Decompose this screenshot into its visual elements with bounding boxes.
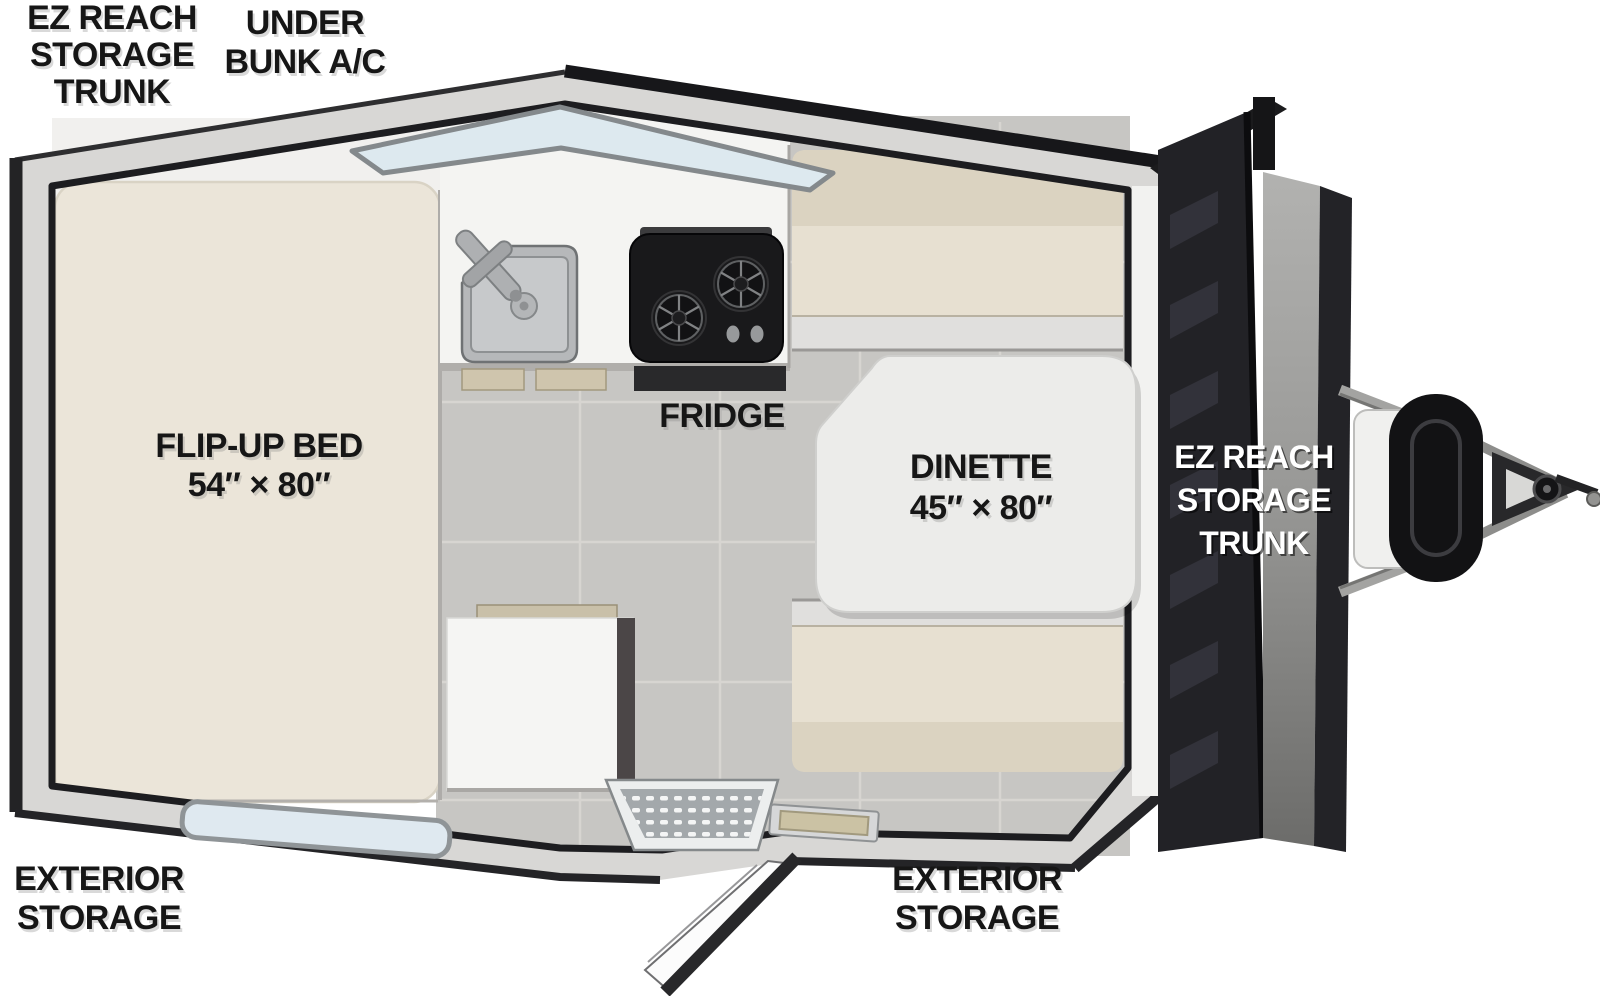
propane-tank [1389, 394, 1483, 582]
stove-knob [751, 326, 764, 343]
svg-text:TRUNK: TRUNK [1199, 525, 1309, 561]
callout-exterior-storage-left: EXTERIOR STORAGE [14, 860, 184, 937]
svg-text:FRIDGE: FRIDGE [659, 397, 784, 435]
callout-text: BUNK A/C [225, 43, 386, 81]
label-fridge: FRIDGE [659, 397, 784, 435]
callout-text: EXTERIOR [892, 860, 1062, 898]
burner [652, 291, 706, 345]
callout-text: STORAGE [17, 899, 181, 937]
svg-text:STORAGE: STORAGE [1177, 482, 1331, 518]
callout-under-bunk-ac: UNDER BUNK A/C [225, 4, 386, 81]
dinette-bench-bottom [792, 600, 1123, 772]
callout-text: STORAGE [895, 899, 1059, 937]
callout-text: TRUNK [54, 73, 171, 111]
entry-step [606, 780, 778, 850]
stove-knob [727, 326, 740, 343]
svg-text:54″ × 80″: 54″ × 80″ [188, 466, 331, 504]
svg-text:DINETTE: DINETTE [910, 448, 1052, 486]
burner [714, 257, 768, 311]
fridge [634, 366, 786, 391]
callout-text: UNDER [246, 4, 364, 42]
floorplan-canvas: EZ REACH STORAGE TRUNK UNDER BUNK A/C EX… [0, 0, 1600, 996]
entry-mat [769, 804, 879, 841]
cabinet-drawer [536, 369, 606, 390]
callout-text: STORAGE [30, 36, 194, 74]
callout-text: EZ REACH [27, 0, 197, 37]
callout-exterior-storage-right: EXTERIOR STORAGE [892, 860, 1062, 937]
callout-top-left: EZ REACH STORAGE TRUNK [27, 0, 197, 111]
svg-text:45″ × 80″: 45″ × 80″ [910, 489, 1053, 527]
floorplan-page: EZ REACH STORAGE TRUNK UNDER BUNK A/C EX… [0, 0, 1600, 996]
storage-cabinet [447, 605, 635, 790]
dinette-table [816, 356, 1141, 619]
svg-text:EZ REACH: EZ REACH [1174, 439, 1334, 475]
callout-text: EXTERIOR [14, 860, 184, 898]
cabinet-drawer [462, 369, 524, 390]
two-burner-cooktop [630, 227, 783, 362]
belly-window [181, 801, 451, 858]
svg-text:FLIP-UP BED: FLIP-UP BED [155, 427, 362, 465]
